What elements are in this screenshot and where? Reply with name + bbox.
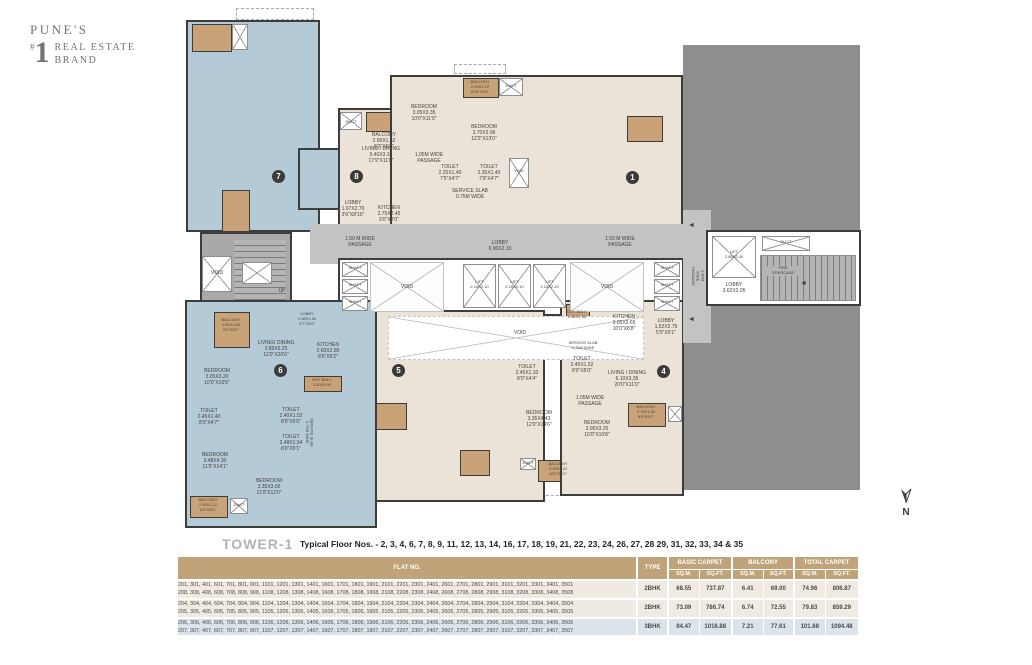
lobby-r-label: LOBBY 3.62X2.05 xyxy=(712,282,756,294)
void-label: VOID xyxy=(508,330,532,336)
central-lobby-label: LOBBY 6.90X2.10 xyxy=(478,240,522,252)
col-bal-sqm: SQ.M. xyxy=(732,569,763,580)
col-type: TYPE xyxy=(637,557,668,580)
room-label-balcony6a: BALCONY 1.52X2.80 5'0"X9'2" xyxy=(212,318,250,332)
room-label-kitchen4: KITCHEN 3.05X2.65 10'0"X8'8" xyxy=(602,314,646,332)
fire-staircase xyxy=(760,255,856,301)
basic-sqm: 73.09 xyxy=(668,599,699,618)
table-row: 204, 304, 404, 604, 704, 804, 904, 1104,… xyxy=(178,599,858,618)
dashed-projection xyxy=(454,64,506,74)
room-label-living4: LIVING / DINING 6.10X3.35 20'0"X11'0" xyxy=(598,370,656,388)
total-sqm: 101.68 xyxy=(794,618,825,636)
room-label-bedroom6c: BEDROOM 3.35X3.65 11'0"X12'0" xyxy=(242,478,296,496)
title-line: TOWER-1 Typical Floor Nos. - 2, 3, 4, 6,… xyxy=(178,536,858,554)
room-label-living8: LIVING / DINING 5.40X3.35 17'9"X11'0" xyxy=(350,146,412,164)
north-label: N xyxy=(893,507,919,518)
void-label: VOID xyxy=(509,169,529,174)
room-label-toilet-t2: TOILET 2.35X1.40 7'9"X4'7" xyxy=(470,164,508,182)
room-label-lobby8: LOBBY 1.07X2.70 3'6"X8'10" xyxy=(338,200,368,218)
page: PUNE'S # 1 REAL ESTATE BRAND 7 VOID U xyxy=(0,0,1032,665)
flat-type: 2BHK xyxy=(637,599,668,618)
room-label-toilet5: TOILET 2.45X1.32 8'0"X4'4" xyxy=(508,364,546,382)
flat-numbers: 201, 301, 401, 601, 701, 801, 901, 1101,… xyxy=(178,580,637,599)
flat-numbers: 206, 306, 406, 606, 706, 806, 906, 1106,… xyxy=(178,618,637,636)
room-label-drybalc4: DRY BALC 0.86X1.98 xyxy=(563,310,591,320)
balcony-sqm: 6.74 xyxy=(732,599,763,618)
room-label-toilet-t1: TOILET 2.25X1.40 7'5"X4'7" xyxy=(431,164,469,182)
basic-sqm: 68.55 xyxy=(668,580,699,599)
table-row: 201, 301, 401, 601, 701, 801, 901, 1101,… xyxy=(178,580,858,599)
duct-box xyxy=(668,406,682,422)
basic-sqft: 737.87 xyxy=(699,580,732,599)
north-compass: N xyxy=(893,488,919,518)
service-slab-label: SERVICE SLAB 0.75M WIDE xyxy=(560,341,606,351)
shaft-label: SHAFT xyxy=(654,266,680,271)
room-label-bedroom6b: BEDROOM 3.48X4.30 11'5"X14'1" xyxy=(188,452,242,470)
unit-badge-1: 1 xyxy=(626,171,639,184)
dashed-projection xyxy=(236,8,314,20)
room-label-bedroom-b1: BEDROOM 3.35X4.43 12'0"X14'6" xyxy=(514,410,564,428)
shaft-label: SHAFT xyxy=(342,266,368,271)
unit-1-sitout xyxy=(627,116,663,142)
room-label-living6: LIVING/ DINING 3.85X6.25 12'0"X20'6" xyxy=(248,340,304,358)
col-total-carpet: TOTAL CARPET xyxy=(794,557,858,569)
room-label-lobby4: LOBBY 1.52X2.76 5'0"X9'1" xyxy=(650,318,682,336)
col-basic-sqft: SQ.FT. xyxy=(699,569,732,580)
unit-badge-5: 5 xyxy=(392,364,405,377)
unit-7-sitout xyxy=(222,190,250,232)
service-slab-label: SERVICE SLAB 0.75M WIDE xyxy=(304,412,314,452)
passage-105-label: 1.05M WIDE PASSAGE xyxy=(568,395,612,407)
floor-plan: 7 VOID UP BALCONY 2.50X1.52 8'2"X5'0" DU… xyxy=(178,8,870,530)
void-label: VOID xyxy=(202,270,232,276)
passage-105-label: 1.05M WIDE PASSAGE xyxy=(406,152,452,164)
duct-label: DUCT xyxy=(520,461,536,466)
lift-label: LIFT 2.10X2.10 xyxy=(498,280,531,290)
unit-7-balcony xyxy=(192,24,232,52)
room-label-balcony-b: BALCONY 3.10X1.22 10'2"X4'0" xyxy=(536,462,580,476)
total-sqm: 74.96 xyxy=(794,580,825,599)
flat-type: 2BHK xyxy=(637,580,668,599)
balcony-sqm: 7.21 xyxy=(732,618,763,636)
unit-badge-6: 6 xyxy=(274,364,287,377)
logo-line3: BRAND xyxy=(55,55,98,66)
col-total-sqft: SQ.FT. xyxy=(825,569,858,580)
duct-box xyxy=(232,24,248,50)
brand-logo: PUNE'S # 1 REAL ESTATE BRAND xyxy=(30,22,136,67)
unit-badge-7: 7 xyxy=(272,170,285,183)
total-sqft: 806.87 xyxy=(825,580,858,599)
basic-sqft: 786.74 xyxy=(699,599,732,618)
flat-type: 3BHK xyxy=(637,618,668,636)
unit-badge-4: 4 xyxy=(657,365,670,378)
duct-label: DUCT xyxy=(499,84,523,89)
total-sqft: 1094.48 xyxy=(825,618,858,636)
north-arrow-icon xyxy=(897,488,915,504)
room-label-bedroom-b2: BEDROOM 3.05X3.25 10'0"X10'8" xyxy=(574,420,620,438)
room-label-drybalc6: DRY BALC 2.60X0.90 xyxy=(302,378,342,388)
passage-150-vert-label: 1.50M WIDE PASSAGE xyxy=(690,248,704,304)
col-bal-sqft: SQ.FT. xyxy=(763,569,794,580)
balcony-sqft: 72.55 xyxy=(763,599,794,618)
footer: TOWER-1 Typical Floor Nos. - 2, 3, 4, 6,… xyxy=(178,536,858,635)
room-label-lobby6: LOBBY 1.08X1.52 3'7"X5'0" xyxy=(290,312,324,326)
lift-label: LIFT 2.10X2.10 xyxy=(463,280,496,290)
up-label: UP xyxy=(274,288,290,294)
tower-title: TOWER-1 xyxy=(222,536,293,552)
col-balcony: BALCONY xyxy=(732,557,794,569)
unit-badge-8: 8 xyxy=(350,170,363,183)
room-label-bedroom-t2: BEDROOM 3.70X3.96 12'2"X13'0" xyxy=(458,124,510,142)
duct-label: DUCT xyxy=(230,503,248,508)
passage-150-left-label: 1.50 M WIDE PASSAGE xyxy=(338,236,382,248)
void-label: VOID xyxy=(592,284,622,290)
room-label-toilet4: TOILET 2.45X1.52 8'0"X5'0" xyxy=(562,356,602,374)
shaft-label: SHAFT xyxy=(342,300,368,305)
passage-150-right-label: 1.50 M WIDE PASSAGE xyxy=(598,236,642,248)
passage-arrow: ◄ xyxy=(688,316,695,323)
passage-arrow: ◄ xyxy=(688,222,695,229)
flat-area-table: FLAT NO. TYPE BASIC CARPET BALCONY TOTAL… xyxy=(178,557,858,635)
col-total-sqm: SQ.M. xyxy=(794,569,825,580)
duct-label: DUCT xyxy=(762,240,810,245)
logo-number: 1 xyxy=(35,39,50,67)
room-label-balcony-top: BALCONY 2.20X1.22 6'10"X4'0" xyxy=(459,80,501,94)
room-label-balcony6b: BALCONY 2.45X1.22 8'0"X4'0" xyxy=(188,498,228,512)
balcony-sqft: 69.00 xyxy=(763,580,794,599)
unit-5-patio xyxy=(460,450,490,476)
fire-stair-label: FIRE STAIRCASE xyxy=(766,266,800,276)
room-label-kitchen8: KITCHEN 2.75X2.45 9'0"X8'0" xyxy=(370,205,408,223)
col-basic-carpet: BASIC CARPET xyxy=(668,557,732,569)
service-slab-label: SERVICE SLAB 0.75M WIDE xyxy=(444,188,496,200)
lift-label: LIFT 2.10X2.10 xyxy=(533,280,566,290)
room-label-bedroom6a: BEDROOM 3.05X3.20 10'0"X10'6" xyxy=(192,368,242,386)
col-flat-no: FLAT NO. xyxy=(178,557,637,580)
flat-numbers: 204, 304, 404, 604, 704, 804, 904, 1104,… xyxy=(178,599,637,618)
basic-sqft: 1016.88 xyxy=(699,618,732,636)
lift-label: LIFT 2.85X2.40 xyxy=(712,250,756,260)
total-sqft: 859.29 xyxy=(825,599,858,618)
balcony-sqft: 77.61 xyxy=(763,618,794,636)
shaft-label: SHAFT xyxy=(654,300,680,305)
logo-line2: REAL ESTATE xyxy=(55,42,136,53)
basic-sqm: 94.47 xyxy=(668,618,699,636)
shaft-label: SHAFT xyxy=(654,283,680,288)
duct-label: DUCT xyxy=(340,120,362,125)
total-sqm: 79.83 xyxy=(794,599,825,618)
stair-landing xyxy=(242,262,272,284)
balcony-sqm: 6.41 xyxy=(732,580,763,599)
room-label-balcony4: BALCONY 2.75X1.52 9'0"X5'0" xyxy=(626,405,666,419)
room-label-toilet6a: TOILET 2.45X1.40 8'0"X4'7" xyxy=(188,408,230,426)
logo-lines: REAL ESTATE BRAND xyxy=(55,41,136,67)
room-label-kitchen6: KITCHEN 2.60X2.80 8'6"X9'2" xyxy=(306,342,350,360)
table-row: 206, 306, 406, 606, 706, 806, 906, 1106,… xyxy=(178,618,858,636)
col-basic-sqm: SQ.M. xyxy=(668,569,699,580)
typical-floors-text: Typical Floor Nos. - 2, 3, 4, 6, 7, 8, 9… xyxy=(300,539,743,549)
shaft-label: SHAFT xyxy=(342,283,368,288)
room-label-bedroom-t1: BEDROOM 3.05X3.35 10'0"X11'0" xyxy=(400,104,448,122)
void-label: VOID xyxy=(392,284,422,290)
stair-arrow: ◄ xyxy=(800,280,807,287)
